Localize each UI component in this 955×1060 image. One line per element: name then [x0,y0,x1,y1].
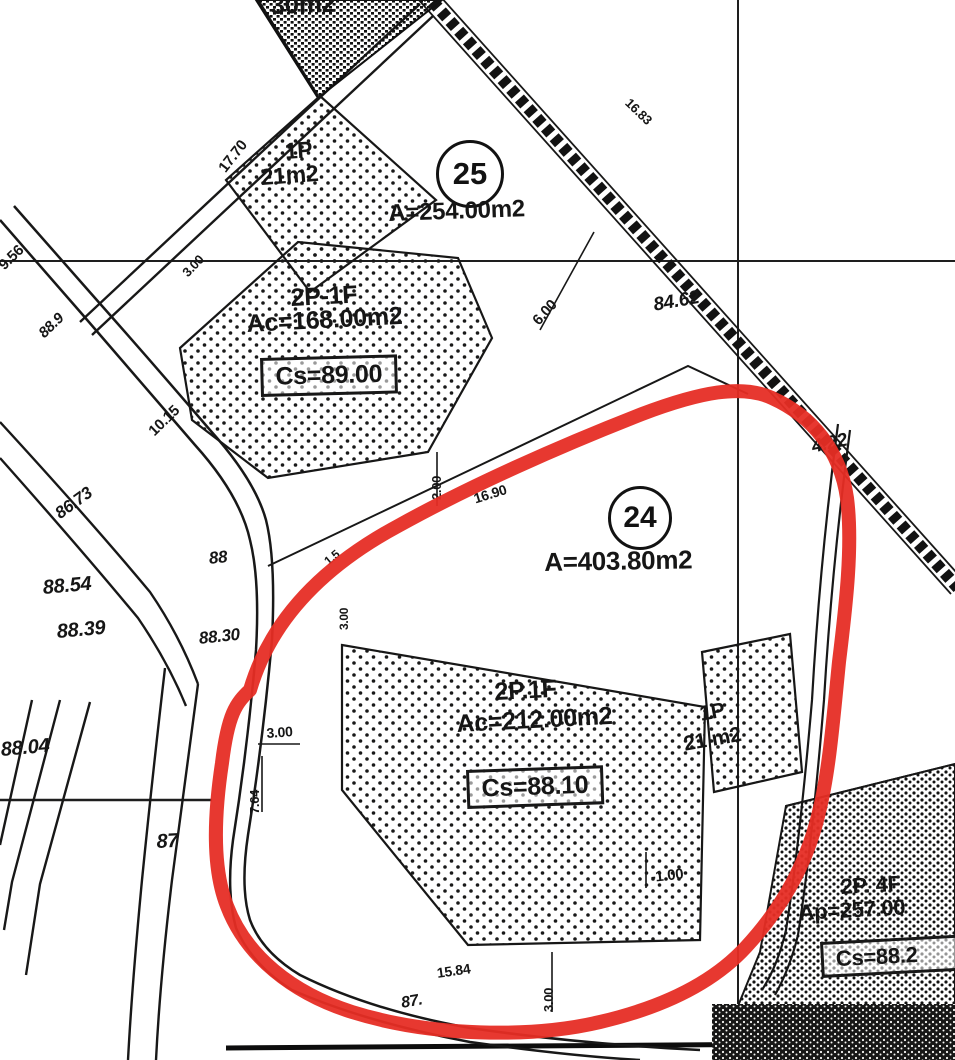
elev-88-39: 88.39 [56,618,106,642]
label-bld24-small-floors: 1P [698,700,726,725]
label-bld25-cs: Cs=89.00 [260,354,398,397]
label-bld25-small-floors: 1P [284,138,313,163]
elev-88-54: 88.54 [42,574,92,598]
dim-3-00-b: 3.00 [338,608,350,630]
dim-7-64: 7.64 [248,790,261,814]
label-bldSE-area: Ap=257.00 [798,896,906,924]
label-bld24-floors: 2P.1F [494,677,557,705]
parcel24-number-badge: 24 [608,486,672,550]
parcel-SE-dark-band [712,1004,955,1060]
cadastral-map: 30m2 17.70 1P 21m2 25 A=254.00m2 9.56 88… [0,0,955,1060]
label-parcel24-area: A=403.80m2 [544,546,692,575]
label-bldSE-cs: Cs=88.2 [820,934,955,978]
elev-88-30: 88.30 [198,626,241,647]
elev-88-04: 88.04 [0,736,50,760]
dim-3-00-d: 3.00 [542,988,555,1012]
dim-2-00: 2.00 [430,476,443,500]
elev-88: 88 [208,548,228,567]
label-bld25-small-area: 21m2 [260,162,319,189]
dim-1-00: -1.00 [650,867,684,885]
label-bld24-cs: Cs=88.10 [466,765,604,809]
label-top-shed-area: 30m2 [270,0,336,18]
label-parcel25-area: A=254.00m2 [388,197,525,226]
elev-87: 87 [156,831,179,852]
dim-3-00-c: 3.00 [266,724,293,740]
